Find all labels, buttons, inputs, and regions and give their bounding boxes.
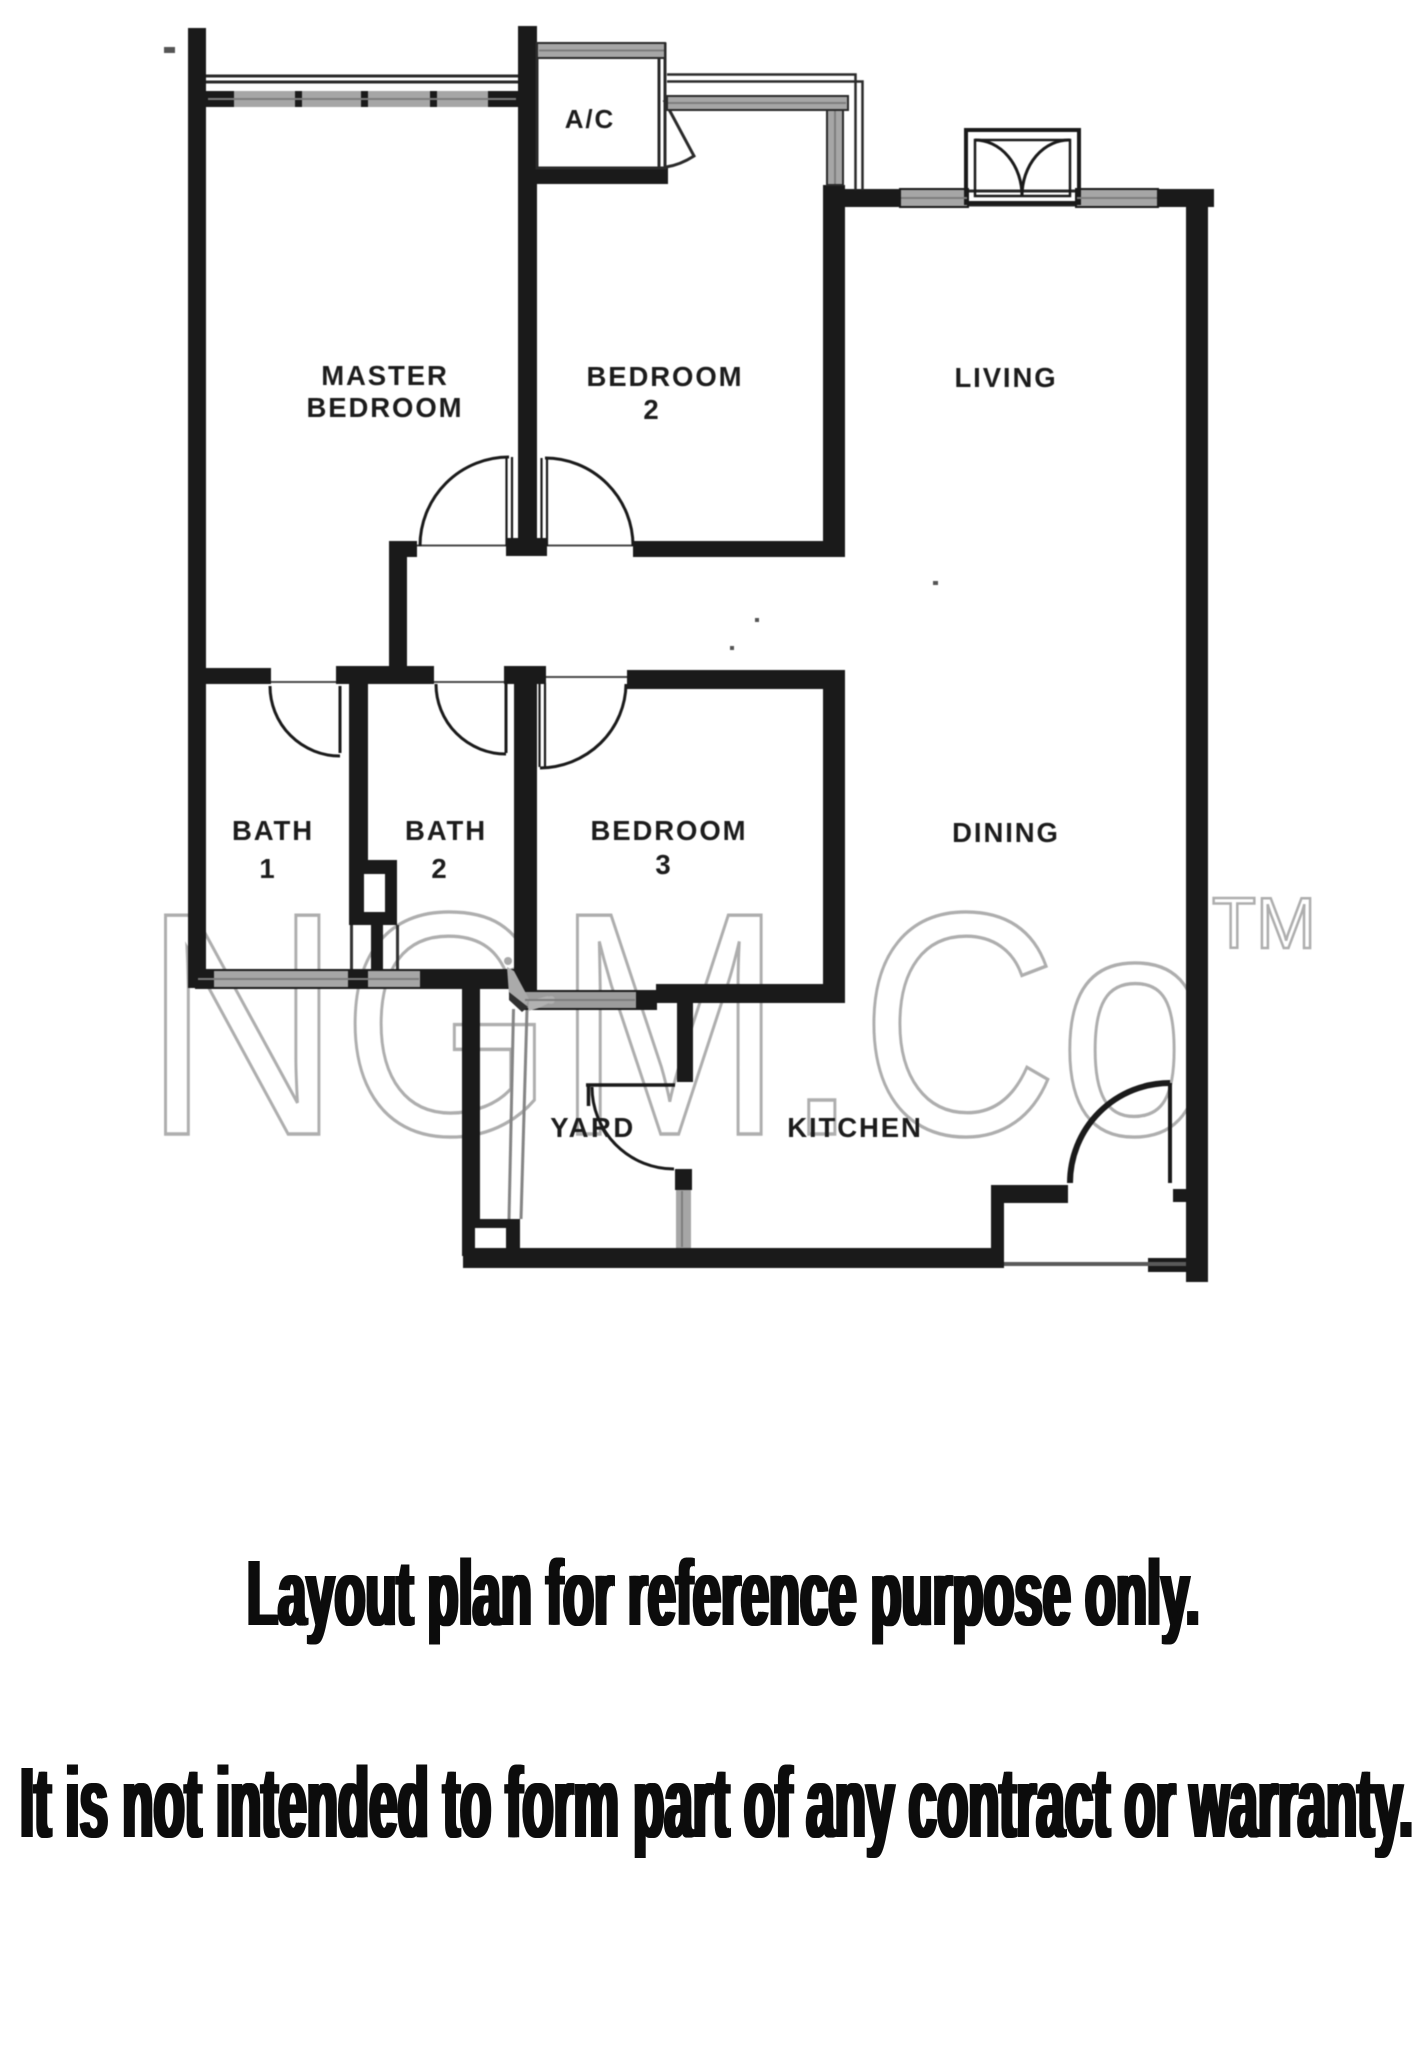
- svg-text:BEDROOM: BEDROOM: [591, 815, 748, 846]
- svg-text:YARD: YARD: [550, 1112, 635, 1143]
- svg-text:1: 1: [259, 853, 276, 884]
- svg-text:KITCHEN: KITCHEN: [787, 1112, 923, 1143]
- svg-text:LIVING: LIVING: [954, 362, 1057, 393]
- svg-text:3: 3: [655, 849, 672, 880]
- svg-text:BEDROOM: BEDROOM: [587, 361, 744, 392]
- svg-text:BATH: BATH: [405, 815, 487, 846]
- svg-text:BEDROOM: BEDROOM: [307, 392, 464, 423]
- svg-text:MASTER: MASTER: [321, 360, 449, 391]
- svg-text:2: 2: [431, 853, 448, 884]
- svg-text:2: 2: [643, 394, 660, 425]
- svg-text:BATH: BATH: [232, 815, 314, 846]
- svg-text:DINING: DINING: [952, 817, 1060, 848]
- svg-text:A/C: A/C: [565, 104, 615, 134]
- svg-text:TM: TM: [1212, 884, 1316, 964]
